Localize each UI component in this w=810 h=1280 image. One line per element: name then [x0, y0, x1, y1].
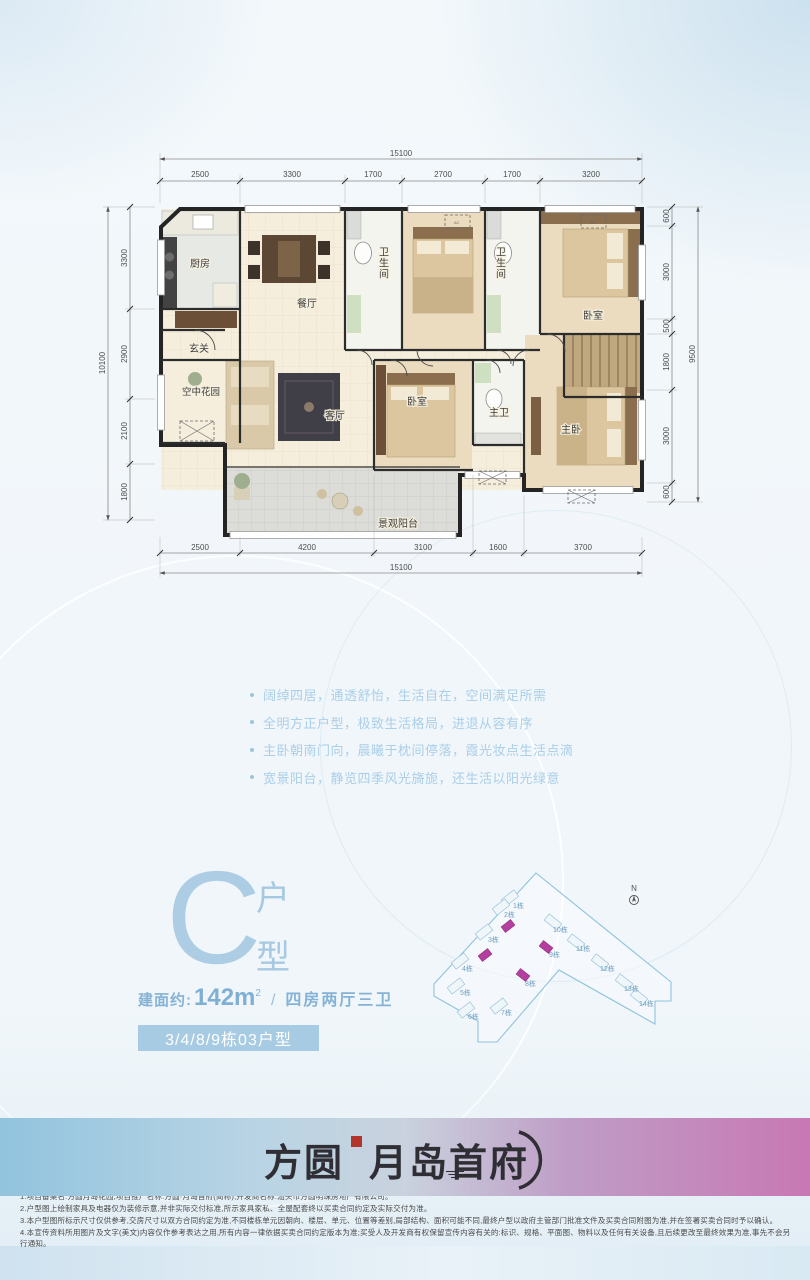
- building-label-1: 1栋: [513, 901, 524, 910]
- feature-text: 阔绰四居，通透舒怡，生活自在，空间满足所需: [263, 685, 547, 704]
- dim-left-4: 1800: [120, 483, 129, 501]
- dim-right-4: 1800: [662, 353, 671, 371]
- bullet-dot-icon: [250, 720, 254, 724]
- dim-right-2: 3000: [662, 263, 671, 281]
- room-label-entry: 玄关: [189, 342, 209, 355]
- dim-bot-5: 3700: [574, 543, 592, 552]
- room-label-bath1: 卫生间: [377, 247, 389, 280]
- dim-right-overall: 9500: [688, 345, 697, 363]
- disclaimer-line-4: 4.本宣传资料所用图片及文字(美文)内容仅作参考表达之用,所有内容一律依据买卖合…: [20, 1228, 796, 1249]
- building-label-6: 6栋: [468, 1012, 479, 1021]
- room-label-bath2: 卫生间: [494, 247, 506, 280]
- dim-top-1: 2500: [191, 170, 209, 179]
- building-label-5: 5栋: [460, 988, 471, 997]
- building-label-10: 10栋: [553, 925, 568, 934]
- building-badge: 3/4/8/9栋03户型: [138, 1025, 319, 1051]
- area-superscript: 2: [255, 988, 261, 999]
- dim-top-5: 1700: [503, 170, 521, 179]
- room-label-sky-garden: 空中花园: [182, 386, 220, 398]
- ac-label: AC: [454, 220, 460, 225]
- feature-item: 全明方正户型，极致生活格局，进退从容有序: [250, 709, 590, 737]
- building-label-7: 7栋: [501, 1008, 512, 1017]
- dim-left-2: 2900: [120, 345, 129, 363]
- dim-left-overall: 10100: [98, 351, 107, 374]
- unit-area-line: 建面约: 142m 2 / 四房两厅三卫: [138, 984, 393, 1012]
- dim-bot-4: 1600: [489, 543, 507, 552]
- dim-right-3: 500: [662, 319, 671, 333]
- bullet-dot-icon: [250, 693, 254, 697]
- site-plan: 1栋 2栋 3栋 4栋 5栋 6栋 7栋 8栋 9栋 10栋 11栋 12栋 1…: [420, 858, 710, 1068]
- dim-top-overall: 15100: [390, 149, 413, 158]
- disclaimer-block: 1.项目备案名:方圆月岛花园,项目推广名称:方圆·月岛首府(简称),开发商名称:…: [20, 1192, 796, 1251]
- feature-item: 宽景阳台，静览四季风光旖旎，还生活以阳光绿意: [250, 764, 590, 792]
- dim-bot-2: 4200: [298, 543, 316, 552]
- room-label-living: 客厅: [325, 409, 345, 422]
- dim-bot-3: 3100: [414, 543, 432, 552]
- room-label-master-bedroom: 主卧: [561, 423, 581, 436]
- room-label-dining: 餐厅: [297, 297, 317, 310]
- room-label-bedroom-b: 卧室: [407, 395, 427, 408]
- dim-top-6: 3200: [582, 170, 600, 179]
- dim-left-1: 3300: [120, 249, 129, 267]
- unit-letter: C: [166, 852, 261, 984]
- room-label-master-bath: 主卫: [489, 407, 509, 419]
- brand-banner: 方圆 月岛首府: [0, 1118, 810, 1196]
- building-label-4: 4栋: [462, 964, 473, 973]
- building-label-9: 9栋: [549, 950, 560, 959]
- dim-bot-1: 2500: [191, 543, 209, 552]
- building-label-14: 14栋: [639, 999, 654, 1008]
- compass-icon: N: [630, 884, 639, 905]
- feature-list: 阔绰四居，通透舒怡，生活自在，空间满足所需 全明方正户型，极致生活格局，进退从容…: [250, 681, 590, 791]
- moon-arc-icon: [516, 1129, 546, 1191]
- dim-bottom-overall: 15100: [390, 563, 413, 572]
- dim-top-4: 2700: [434, 170, 452, 179]
- dim-right-5: 3000: [662, 427, 671, 445]
- dim-right-1: 600: [662, 209, 671, 223]
- floor-plan: AC AC 厨房 餐厅 卫生间 卫生间 卧室 玄关 空中花园 客厅 卧室 主卫 …: [95, 145, 710, 590]
- dim-right-6: 600: [662, 485, 671, 499]
- area-prefix: 建面约:: [138, 989, 192, 1010]
- logo-seal-icon: [351, 1136, 362, 1147]
- area-value: 142m: [194, 984, 255, 1012]
- area-separator: /: [271, 992, 275, 1010]
- feature-text: 全明方正户型，极致生活格局，进退从容有序: [263, 713, 533, 732]
- building-label-3: 3栋: [488, 935, 499, 944]
- feature-item: 主卧朝南门向，晨曦于枕间停落，霞光妆点生活点滴: [250, 736, 590, 764]
- bg-bottom-strip: [0, 1246, 810, 1280]
- disclaimer-line-3: 3.本户型图所标示尺寸仅供参考,交房尺寸以双方合同约定为准,不同楼栋单元因朝向、…: [20, 1216, 796, 1227]
- building-label-13: 13栋: [624, 984, 639, 993]
- unit-type-char-1: 户: [256, 882, 290, 916]
- building-label-12: 12栋: [600, 964, 615, 973]
- room-label-bedroom-a: 卧室: [583, 309, 603, 322]
- ac-label: AC: [590, 220, 596, 225]
- building-label-8: 8栋: [525, 979, 536, 988]
- unit-layout: 四房两厅三卫: [285, 986, 393, 1010]
- dim-left-3: 2100: [120, 422, 129, 440]
- feature-item: 阔绰四居，通透舒怡，生活自在，空间满足所需: [250, 681, 590, 709]
- compass-north-label: N: [631, 884, 637, 893]
- building-label-2: 2栋: [504, 910, 515, 919]
- room-label-kitchen: 厨房: [190, 257, 210, 270]
- brand-logo: 方圆 月岛首府: [0, 1128, 810, 1190]
- water-ripples-icon: [444, 1170, 466, 1179]
- unit-type-label: 户 型: [256, 882, 290, 975]
- bullet-dot-icon: [250, 748, 254, 752]
- feature-text: 主卧朝南门向，晨曦于枕间停落，霞光妆点生活点滴: [263, 740, 574, 759]
- dim-top-2: 3300: [283, 170, 301, 179]
- logo-brand-text: 方圆: [264, 1132, 344, 1187]
- feature-text: 宽景阳台，静览四季风光旖旎，还生活以阳光绿意: [263, 768, 560, 787]
- unit-type-char-2: 型: [256, 941, 290, 975]
- building-label-11: 11栋: [576, 944, 590, 953]
- room-label-balcony: 景观阳台: [378, 517, 418, 530]
- disclaimer-line-2: 2.户型图上绘制家具及电器仅为装修示意,并非实际交付标准,所示家具家私、全屋配套…: [20, 1204, 796, 1215]
- bullet-dot-icon: [250, 775, 254, 779]
- dim-top-3: 1700: [364, 170, 382, 179]
